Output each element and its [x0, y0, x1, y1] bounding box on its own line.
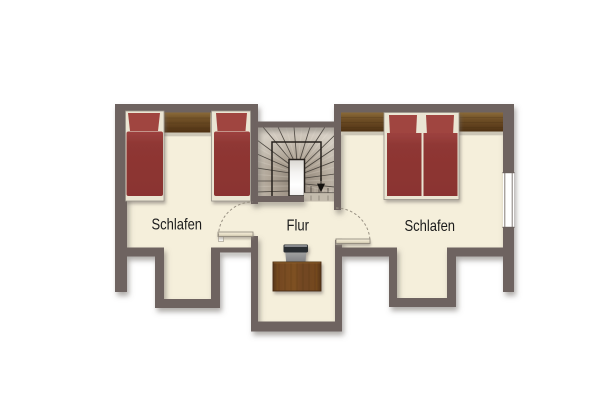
- svg-text:Schlafen: Schlafen: [405, 218, 456, 235]
- svg-text:Schlafen: Schlafen: [152, 217, 203, 234]
- svg-text:Flur: Flur: [287, 218, 310, 235]
